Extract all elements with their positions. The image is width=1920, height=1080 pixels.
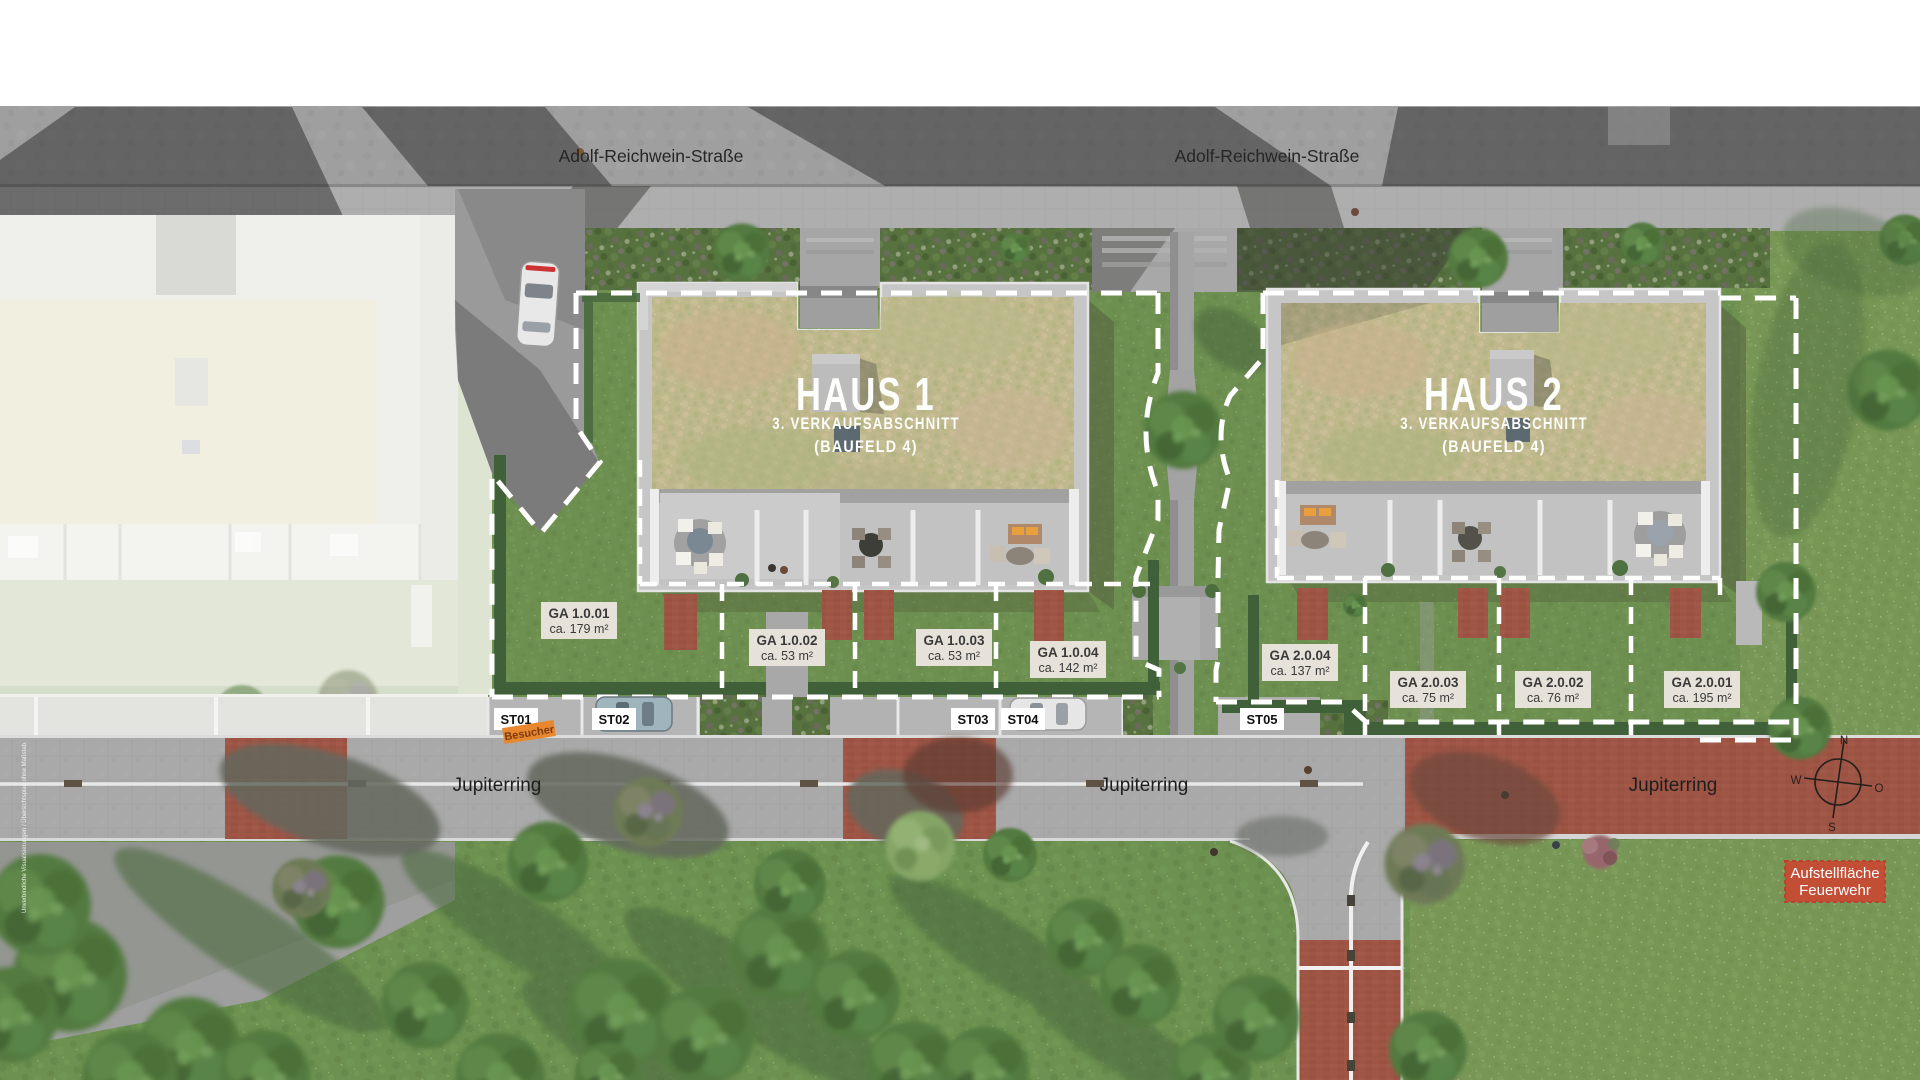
svg-text:3. VERKAUFSABSCHNITT: 3. VERKAUFSABSCHNITT	[1400, 415, 1588, 434]
svg-text:ca. 195 m²: ca. 195 m²	[1672, 691, 1731, 705]
svg-text:ca. 75 m²: ca. 75 m²	[1402, 691, 1454, 705]
svg-text:Jupiterring: Jupiterring	[453, 775, 542, 796]
svg-text:O: O	[1875, 783, 1884, 795]
svg-text:ca. 137 m²: ca. 137 m²	[1270, 664, 1329, 678]
svg-text:(BAUFELD 4): (BAUFELD 4)	[1442, 438, 1545, 456]
svg-text:HAUS 2: HAUS 2	[1424, 368, 1564, 420]
svg-text:ca. 179 m²: ca. 179 m²	[549, 622, 608, 636]
svg-text:ca. 53 m²: ca. 53 m²	[761, 649, 813, 663]
svg-text:GA 1.0.04: GA 1.0.04	[1037, 645, 1099, 660]
svg-text:ST03: ST03	[957, 712, 988, 727]
svg-text:Adolf-Reichwein-Straße: Adolf-Reichwein-Straße	[559, 146, 744, 166]
svg-text:GA 1.0.02: GA 1.0.02	[756, 633, 817, 648]
svg-text:GA 1.0.01: GA 1.0.01	[548, 606, 610, 621]
svg-text:GA 1.0.03: GA 1.0.03	[923, 633, 985, 648]
svg-text:GA 2.0.01: GA 2.0.01	[1671, 675, 1733, 690]
svg-text:GA 2.0.04: GA 2.0.04	[1269, 648, 1331, 663]
svg-text:Jupiterring: Jupiterring	[1100, 775, 1189, 796]
svg-text:Unverbindliche Visualisierunge: Unverbindliche Visualisierungen / Übersi…	[21, 741, 28, 913]
svg-text:ca. 53 m²: ca. 53 m²	[928, 649, 980, 663]
svg-text:ST04: ST04	[1007, 712, 1039, 727]
svg-text:N: N	[1840, 735, 1848, 747]
svg-text:ca. 142 m²: ca. 142 m²	[1038, 661, 1097, 675]
svg-text:HAUS 1: HAUS 1	[796, 368, 936, 420]
svg-text:Aufstellfläche: Aufstellfläche	[1790, 865, 1879, 882]
svg-text:ca. 76 m²: ca. 76 m²	[1527, 691, 1579, 705]
svg-text:(BAUFELD 4): (BAUFELD 4)	[814, 438, 917, 456]
svg-text:GA 2.0.03: GA 2.0.03	[1397, 675, 1459, 690]
svg-text:ST05: ST05	[1246, 712, 1277, 727]
svg-text:GA 2.0.02: GA 2.0.02	[1522, 675, 1583, 690]
svg-text:Feuerwehr: Feuerwehr	[1799, 882, 1871, 899]
svg-text:S: S	[1828, 822, 1836, 834]
svg-text:Adolf-Reichwein-Straße: Adolf-Reichwein-Straße	[1175, 146, 1360, 166]
svg-text:Jupiterring: Jupiterring	[1629, 775, 1718, 796]
svg-text:3. VERKAUFSABSCHNITT: 3. VERKAUFSABSCHNITT	[772, 415, 960, 434]
svg-text:ST02: ST02	[598, 712, 629, 727]
svg-text:W: W	[1791, 775, 1802, 787]
